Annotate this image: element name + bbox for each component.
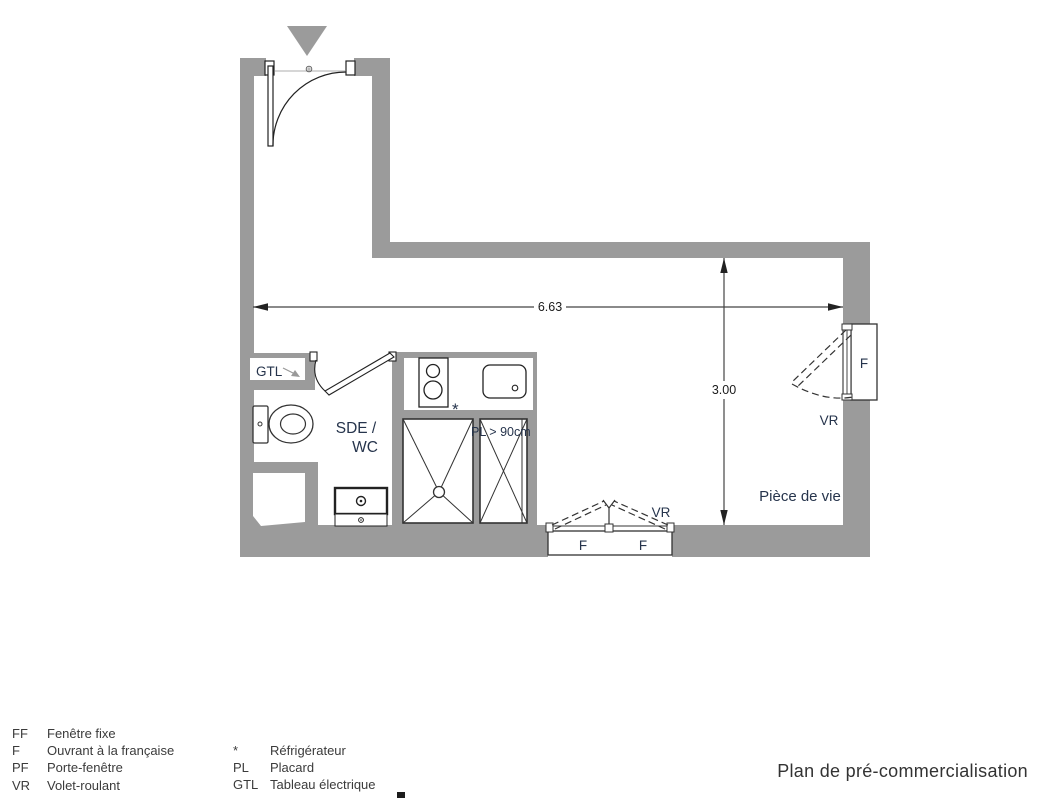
living-room-label: Pièce de vie [759, 488, 841, 505]
toilet-bowl-inner [281, 414, 306, 434]
window-bottom-f2-label: F [639, 538, 647, 553]
toilet [253, 405, 313, 443]
window-bottom-leaf-left-dashed [552, 501, 604, 525]
floor-plan-page: GTL [0, 0, 1037, 800]
sde-wc-label-line1: SDE / [336, 420, 377, 437]
dim-arrow-top [720, 258, 727, 273]
floor-plan-drawing: GTL [0, 0, 1037, 800]
wall-bottom-right [672, 525, 870, 557]
bottom-mark [397, 792, 405, 798]
window-bottom-box [548, 531, 672, 555]
sde-wc-door [310, 352, 396, 395]
shower-tray [403, 419, 473, 523]
dim-arrow-bottom [720, 510, 727, 525]
sde-door-jamb-left [310, 352, 317, 361]
window-bottom-mullion [605, 524, 613, 532]
door-jamb-right [346, 61, 355, 75]
plan-title: Plan de pré-commercialisation [777, 761, 1028, 782]
window-right-f-label: F [860, 356, 868, 371]
entrance-arrow-icon [287, 26, 327, 56]
dimension-width-label: 6.63 [538, 300, 562, 314]
sde-door-leaf [325, 353, 394, 395]
window-right-leaf-dashed [792, 330, 846, 382]
sink-drain [512, 385, 518, 391]
wall-hall-right [372, 72, 390, 258]
entrance-door [265, 61, 355, 146]
vanity-unit [335, 488, 387, 526]
duct-niche [253, 473, 305, 526]
wall-right-upper [843, 242, 870, 324]
wall-top-left-of-door [240, 58, 266, 76]
sde-door-swing-arc [315, 360, 325, 391]
window-bottom-f1-label: F [579, 538, 587, 553]
dim-arrow-right [828, 303, 843, 311]
shower-drain [434, 487, 445, 498]
sde-wc-label-line2: WC [352, 439, 378, 456]
cooktop [419, 358, 448, 407]
door-leaf [268, 66, 273, 146]
sink-basin [483, 365, 526, 398]
cooktop-burner-small [427, 365, 440, 378]
cooktop-burner-large [424, 381, 442, 399]
window-right-vr-label: VR [820, 413, 839, 428]
gtl-label: GTL [256, 364, 283, 379]
toilet-button [258, 422, 262, 426]
fridge-marker: * [452, 400, 459, 419]
window-bottom-vr-label: VR [652, 505, 671, 520]
dim-arrow-left [253, 303, 268, 311]
wall-living-top [372, 242, 870, 258]
window-bottom-apex [603, 500, 615, 508]
shower-outline [403, 419, 473, 523]
kitchen-sink [483, 365, 526, 398]
dimension-height-label: 3.00 [712, 383, 736, 397]
door-swing-arc [273, 72, 346, 146]
placard-label: PL > 90cm [471, 425, 531, 439]
